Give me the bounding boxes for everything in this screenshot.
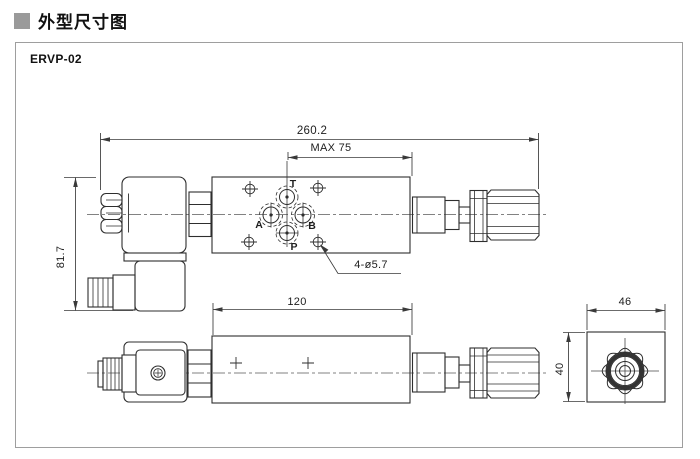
connector-side — [98, 342, 187, 402]
port-b-label: B — [308, 220, 316, 232]
hole-center-marks — [230, 357, 314, 369]
dim-end-height-label: 40 — [554, 363, 566, 376]
port-a-label: A — [255, 219, 263, 231]
dim-body-length-label: 120 — [287, 296, 306, 308]
top-view — [64, 133, 549, 311]
dim-max75 — [288, 152, 412, 176]
dim-120 — [213, 303, 412, 335]
mounting-holes-note-label: 4-ø5.7 — [354, 259, 388, 271]
dimension-drawing-svg — [0, 0, 700, 459]
end-view — [563, 304, 665, 404]
end-body-outline — [587, 332, 665, 402]
solenoid-nut — [101, 194, 122, 234]
dim-height-label: 81.7 — [55, 246, 67, 269]
dim-40 — [563, 333, 585, 402]
solenoid-coil — [122, 177, 186, 253]
port-t-label: T — [290, 178, 296, 190]
side-view — [87, 303, 549, 403]
port-face — [260, 161, 315, 247]
valve-body-side — [212, 336, 410, 403]
dim-end-width-label: 46 — [619, 296, 632, 308]
dim-overall-length-label: 260.2 — [297, 125, 327, 137]
adjust-knob-assembly — [413, 190, 540, 242]
hex-nut-side — [188, 350, 211, 397]
port-p-label: P — [290, 241, 297, 253]
din-connector — [88, 253, 186, 311]
dim-max-length-label: MAX 75 — [311, 142, 352, 154]
dim-81-7 — [64, 178, 133, 311]
